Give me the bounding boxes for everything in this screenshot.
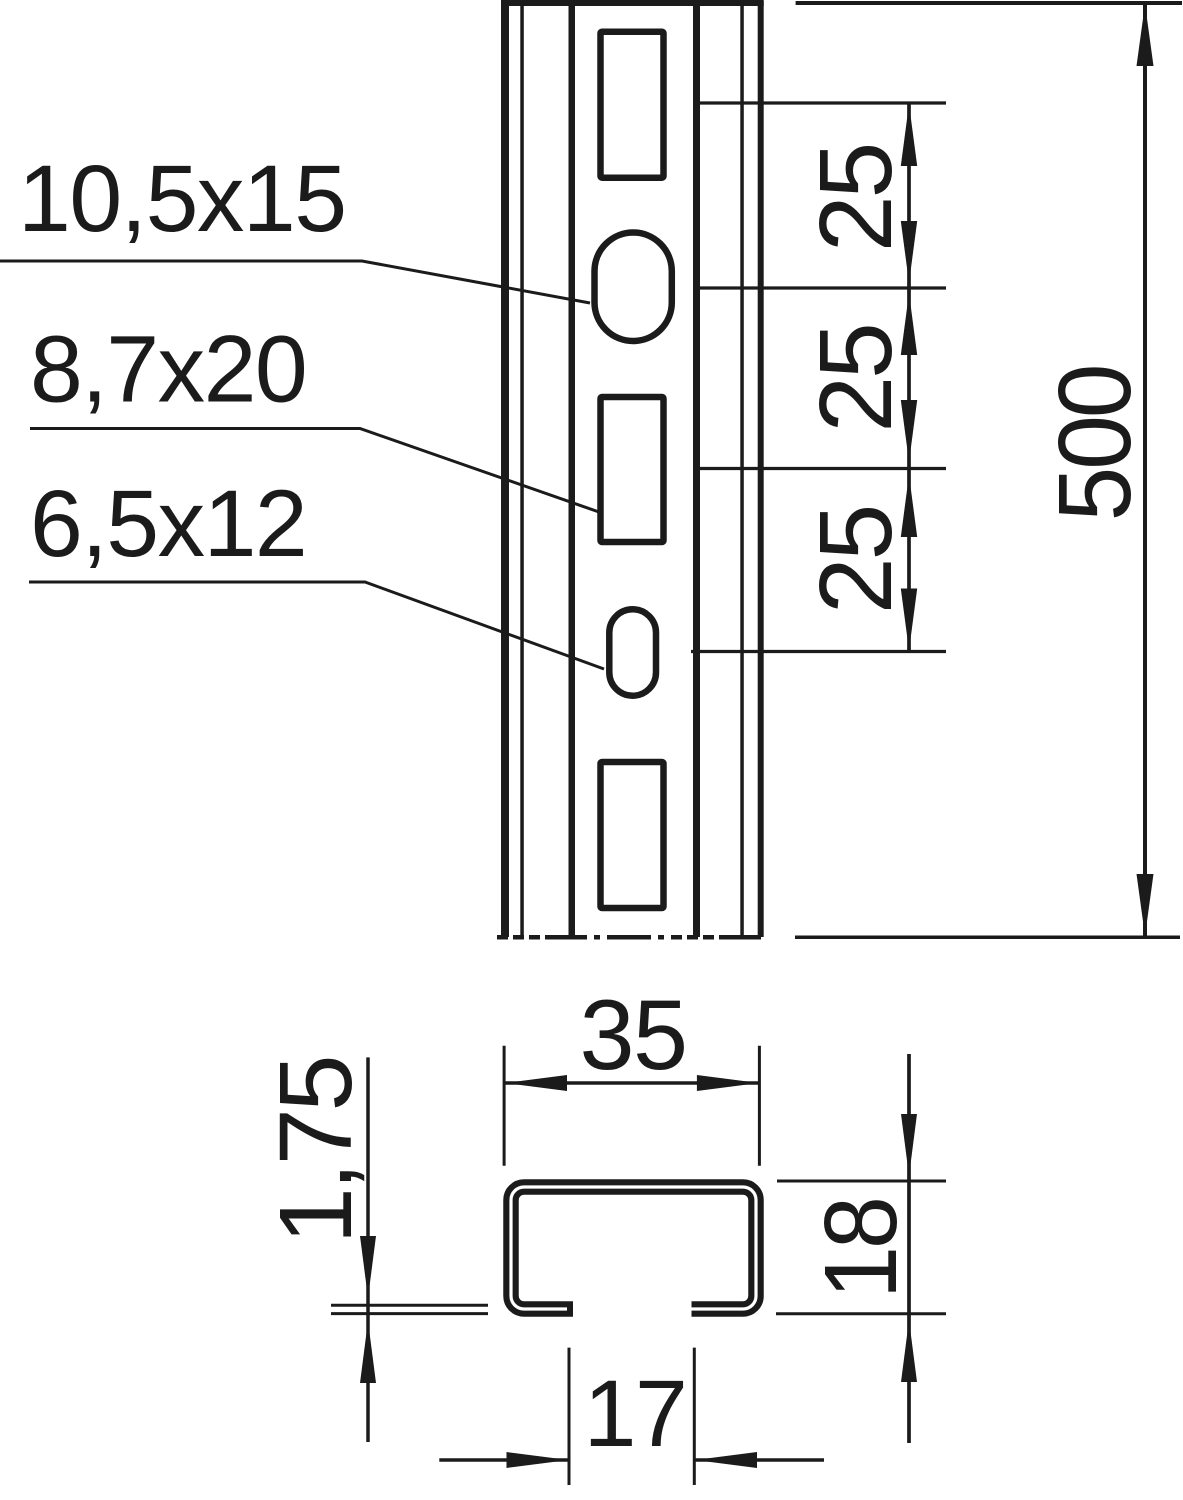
svg-text:6,5x12: 6,5x12 [30,471,306,577]
svg-text:18: 18 [803,1199,918,1299]
svg-text:10,5x15: 10,5x15 [18,146,346,252]
svg-text:500: 500 [1038,367,1152,522]
svg-text:17: 17 [584,1361,687,1467]
svg-text:25: 25 [798,507,913,614]
svg-text:8,7x20: 8,7x20 [30,317,306,423]
svg-text:25: 25 [798,145,913,252]
svg-text:35: 35 [579,979,686,1090]
svg-text:1,75: 1,75 [258,1058,373,1245]
svg-text:25: 25 [798,325,913,432]
